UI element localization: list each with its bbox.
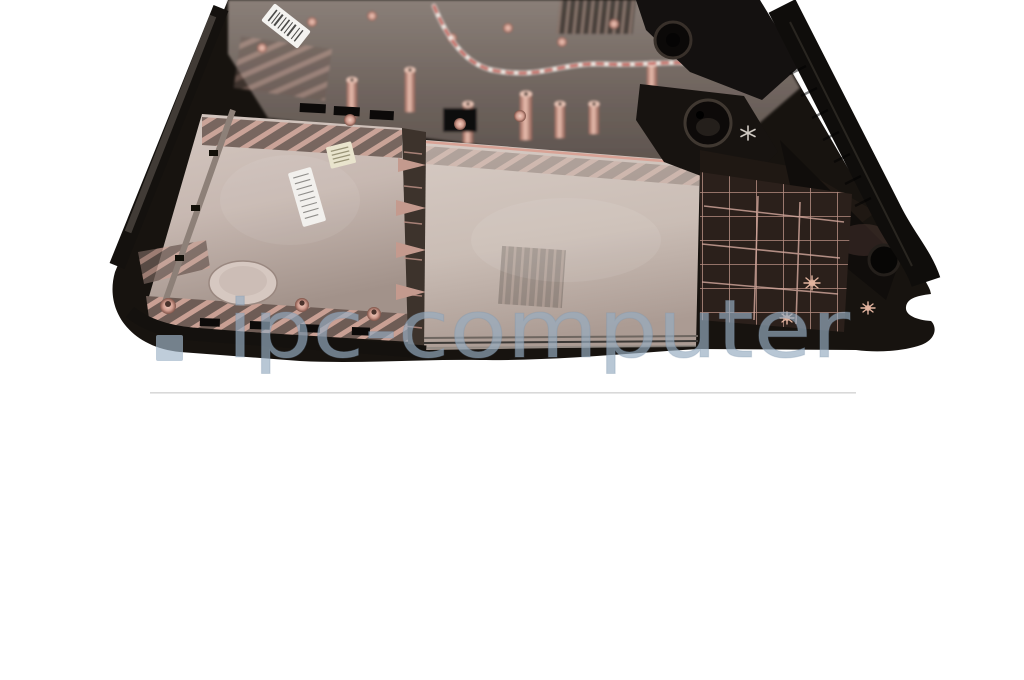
product-photo: ipc-computer <box>0 0 1024 680</box>
watermark-square-icon <box>156 335 183 361</box>
image-divider-line <box>150 392 856 394</box>
product-photo-page: ipc-computer <box>0 0 1024 680</box>
watermark: ipc-computer <box>156 283 850 376</box>
watermark-text: ipc-computer <box>227 283 850 376</box>
